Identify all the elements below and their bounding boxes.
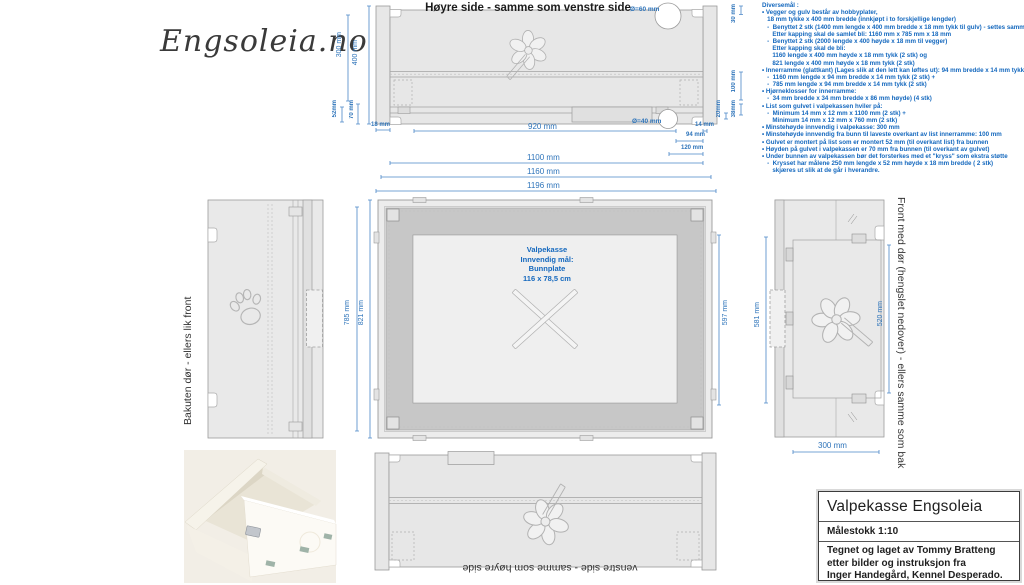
- door-handle: [770, 290, 785, 347]
- dim-30: 30 mm: [731, 4, 737, 23]
- side-panel-top-drawing: [376, 3, 717, 129]
- title-block-title: Valpekasse Engsoleia: [819, 492, 1019, 522]
- dim-581: 581 mm: [754, 302, 761, 327]
- dim-1160: 1160 mm: [527, 167, 560, 176]
- front-view-label: Front med dør (hengslet nedover) - eller…: [895, 197, 907, 447]
- door-handle: [307, 290, 323, 347]
- dim-100: 100 mm: [731, 70, 737, 92]
- dim-1196: 1196 mm: [527, 181, 560, 190]
- dim-920: 920 mm: [528, 122, 557, 131]
- title-block-credit: Tegnet og laget av Tommy Brattengetter b…: [819, 542, 1019, 583]
- hole-40-label: Ø=40 mm: [632, 118, 661, 125]
- dim-20: 20mm: [716, 100, 722, 117]
- title-block: Valpekasse Engsoleia Målestokk 1:10 Tegn…: [818, 491, 1020, 581]
- drawing-sheet: Engsoleia.no Høyre side - samme som vens…: [0, 0, 1024, 585]
- dim-120: 120 mm: [681, 145, 703, 151]
- dim-520: 520 mm: [877, 301, 884, 326]
- dim-400: 400 mm: [352, 40, 359, 65]
- front-panel-drawing: [770, 200, 884, 437]
- side-panel-bottom-drawing: [375, 452, 716, 571]
- dim-94: 94 mm: [686, 132, 705, 138]
- notes-lines: • Vegger og gulv består av hobbyplater, …: [762, 9, 1022, 174]
- dim-300b: 300 mm: [818, 441, 847, 450]
- box-photo: [184, 450, 336, 583]
- plan-view-drawing: [374, 198, 716, 441]
- title-block-scale: Målestokk 1:10: [819, 522, 1019, 542]
- back-view-label: Bakuten dør - ellers lik front: [182, 225, 194, 425]
- notes-block: Diversemål : • Vegger og gulv består av …: [762, 2, 1022, 175]
- dim-70: 70 mm: [349, 100, 355, 119]
- bottom-view-label: venstre side - samme som høyre side: [440, 562, 660, 574]
- site-logo: Engsoleia.no: [160, 24, 350, 59]
- dim-18: 18 mm: [371, 122, 390, 128]
- back-panel-drawing: [208, 200, 323, 438]
- top-view-title: Høyre side - samme som venstre side: [408, 2, 648, 14]
- dim-785: 785 mm: [344, 300, 351, 325]
- dim-1100: 1100 mm: [527, 153, 560, 162]
- dim-821: 821 mm: [358, 300, 365, 325]
- dim-38: 38mm: [731, 100, 737, 117]
- dim-300: 300 mm: [336, 32, 343, 57]
- notes-title: Diversemål :: [762, 2, 1022, 9]
- dim-597: 597 mm: [722, 300, 729, 325]
- hole-60-label: Ø=60 mm: [630, 6, 659, 13]
- dim-14: 14 mm: [695, 122, 714, 128]
- plan-inner-dimensions-label: ValpekasseInnvendig mål:Bunnplate116 x 7…: [494, 245, 600, 283]
- dim-52: 52mm: [332, 100, 338, 117]
